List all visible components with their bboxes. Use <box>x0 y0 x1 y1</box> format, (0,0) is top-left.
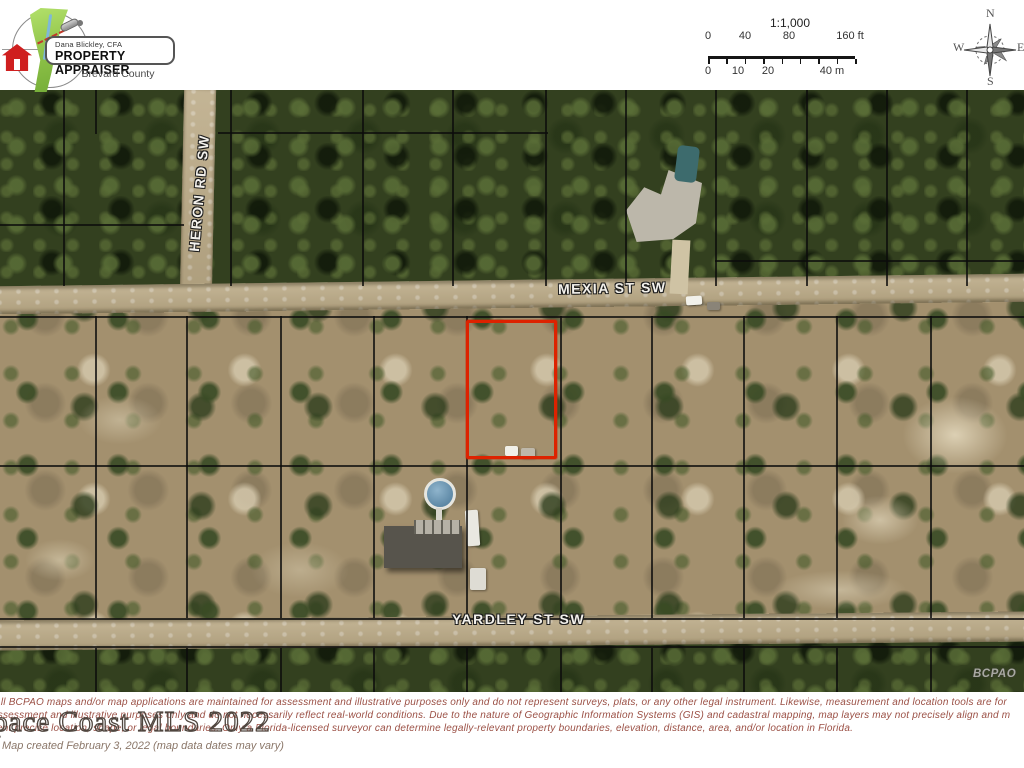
appraiser-name: Dana Blickley, CFA <box>55 40 173 49</box>
parcel-line <box>966 90 968 286</box>
parcel-line <box>715 90 717 286</box>
scale-m-0: 0 <box>705 65 711 77</box>
scale-tick <box>818 59 820 64</box>
county-name: Brevard County <box>58 68 178 80</box>
bcpao-watermark: BCPAO <box>973 668 1016 680</box>
scale-tick <box>800 59 802 64</box>
street-label-heron-wrap: HERON RD SW <box>144 138 254 248</box>
compass-east-label: E <box>1017 40 1024 55</box>
car-on-road <box>686 295 703 305</box>
parcel-line <box>63 90 65 286</box>
scale-tick <box>782 59 784 64</box>
scale-m-10: 10 <box>732 65 744 77</box>
house-door-icon <box>14 59 20 70</box>
map-header: Dana Blickley, CFA PROPERTY APPRAISER Br… <box>0 0 1024 90</box>
scale-tick <box>708 59 710 64</box>
parcel-line <box>743 316 745 618</box>
parcel-line <box>186 316 188 618</box>
parcel-line <box>806 90 808 286</box>
scale-ft-0: 0 <box>705 30 711 42</box>
scale-ft-80: 80 <box>783 30 795 42</box>
compass-west-label: W <box>953 40 964 55</box>
scale-tick <box>745 59 747 64</box>
parcel-line <box>373 316 375 618</box>
disclaimer-footer: All BCPAO maps and/or map applications a… <box>0 692 1024 768</box>
parcel-line <box>452 90 454 286</box>
parcel-line <box>560 316 562 618</box>
parcel-line <box>0 465 1024 467</box>
scale-tick <box>726 59 728 64</box>
parcel-line <box>930 316 932 618</box>
compass-south-label: S <box>987 74 994 89</box>
garage-roof-center <box>414 520 460 534</box>
parcel-line <box>930 648 932 692</box>
parcel-line <box>545 90 547 286</box>
compass-north-label: N <box>986 6 995 21</box>
parcel-line <box>373 648 375 692</box>
street-label-yardley: YARDLEY ST SW <box>452 611 585 627</box>
highlighted-parcel <box>466 320 557 459</box>
street-label-heron: HERON RD SW <box>186 134 212 253</box>
parcel-line <box>280 648 282 692</box>
scale-tick <box>763 59 765 64</box>
parcel-line <box>95 648 97 692</box>
driveway-north <box>670 240 691 295</box>
parcel-line <box>95 316 97 618</box>
parcel-line <box>280 316 282 618</box>
parcel-line <box>95 90 97 134</box>
round-pool-center <box>424 478 456 510</box>
scale-m-20: 20 <box>762 65 774 77</box>
parcel-line <box>0 646 1024 648</box>
parcel-line <box>625 90 627 286</box>
parcel-line <box>836 648 838 692</box>
parcel-line <box>218 132 548 134</box>
mls-watermark: Space Coast MLS 2022 <box>0 706 271 739</box>
scale-tick <box>837 59 839 64</box>
scale-ratio: 1:1,000 <box>715 16 865 30</box>
mls-map-attachment: { "header": { "logo": { "name_line": "Da… <box>0 0 1024 768</box>
parcel-line <box>362 90 364 286</box>
logo-text-box: Dana Blickley, CFA PROPERTY APPRAISER <box>45 36 175 65</box>
truck-vehicle <box>470 568 486 590</box>
scale-tick <box>855 59 857 64</box>
scale-m-40: 40 m <box>820 65 844 77</box>
scale-ft-160: 160 ft <box>836 30 864 42</box>
parcel-line <box>651 648 653 692</box>
parcel-line <box>560 648 562 692</box>
map-created-caption: Map created February 3, 2022 (map data d… <box>2 740 284 752</box>
pool-north <box>674 145 700 183</box>
property-appraiser-logo: Dana Blickley, CFA PROPERTY APPRAISER Br… <box>0 8 182 92</box>
parcel-line <box>651 316 653 618</box>
parcel-line <box>886 90 888 286</box>
parcel-line <box>743 648 745 692</box>
parcel-line <box>466 648 468 692</box>
parcel-line <box>186 648 188 692</box>
scale-ft-40: 40 <box>739 30 751 42</box>
car-on-road <box>707 302 720 310</box>
parcel-line <box>836 316 838 618</box>
street-label-mexia: MEXIA ST SW <box>558 279 667 297</box>
parcel-line <box>0 316 1024 318</box>
pool-deck <box>436 508 442 520</box>
map-scale-bar: 1:1,000 0 40 80 160 ft 0 10 20 40 m <box>690 16 890 78</box>
aerial-map: MEXIA ST SW YARDLEY ST SW HERON RD SW BC… <box>0 90 1024 692</box>
parcel-line <box>715 260 1024 262</box>
compass-rose: N S W E <box>957 8 1024 88</box>
